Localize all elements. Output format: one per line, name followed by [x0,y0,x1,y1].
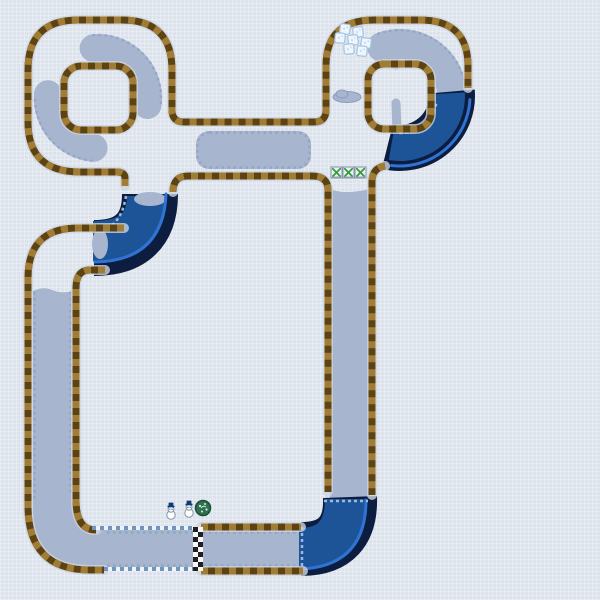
snowman [167,503,175,520]
left-loop-snow-patch-ne [94,48,148,105]
right-corridor-surface [330,189,370,502]
item-panel [331,167,342,178]
track-map[interactable] [0,0,600,600]
item-panel [343,167,354,178]
track-surface [33,30,466,568]
water-section-bottom-right-corner [299,497,368,569]
game-screen [0,0,600,600]
track-borders [28,20,468,571]
snow-fringe [134,192,166,206]
ice-block [357,46,368,57]
finish-line [193,527,203,571]
snow-fringe [92,229,108,259]
tree-bush [196,501,211,516]
item-panel [355,167,366,178]
item-panels [331,167,366,178]
snowman [185,501,193,518]
ice-blocks [335,23,372,56]
mid-corridor-snow-patch [196,131,311,169]
snowmen [167,501,193,520]
ice-block [344,44,355,55]
cloud-patch [333,90,361,103]
ice-block [335,33,346,44]
